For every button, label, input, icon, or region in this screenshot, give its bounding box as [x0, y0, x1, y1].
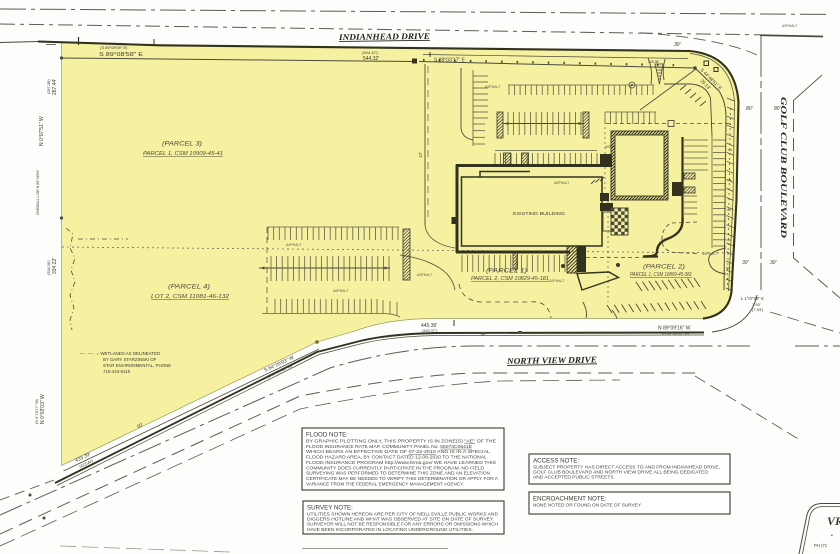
- svg-text:(PARCEL 4): (PARCEL 4): [168, 284, 210, 291]
- svg-text:NONE NOTED OR FOUND ON DATE OF: NONE NOTED OR FOUND ON DATE OF SURVEY: [533, 503, 641, 508]
- svg-text:(N 89°59'33" W): (N 89°59'33" W): [662, 332, 690, 336]
- svg-text:30': 30': [770, 260, 778, 266]
- svg-text:VARIANCE FROM THE FEDERAL EMER: VARIANCE FROM THE FEDERAL EMERGENCY MANA…: [306, 481, 464, 486]
- svg-text:30': 30': [674, 42, 682, 48]
- svg-text:FLOOD INSURANCE RATE MAP, COMM: FLOOD INSURANCE RATE MAP, COMMUNITY PANE…: [306, 444, 472, 449]
- svg-text:VR: VR: [827, 514, 840, 528]
- svg-text:287.44': 287.44': [52, 79, 58, 95]
- svg-text:ASPHALT: ASPHALT: [333, 289, 348, 293]
- svg-text:— · — · = WETLANDS AS DELINEAT: — · — · = WETLANDS AS DELINEATED: [80, 351, 160, 356]
- svg-text:(PARCEL 2): (PARCEL 2): [643, 264, 685, 271]
- svg-text:12': 12': [418, 152, 423, 158]
- svg-text:INDIANHEAD DRIVE: INDIANHEAD DRIVE: [338, 31, 430, 42]
- svg-text:PARCEL 1, CSM 10909-45-41: PARCEL 1, CSM 10909-45-41: [143, 151, 223, 157]
- svg-text:FLOOD HAZARD AREA, BY CONTACT: FLOOD HAZARD AREA, BY CONTACT DATED 12-0…: [306, 455, 488, 460]
- svg-text:S 89°03'17" E: S 89°03'17" E: [434, 58, 466, 64]
- svg-text:544.32': 544.32': [363, 56, 379, 62]
- svg-text:ACCESS NOTE:: ACCESS NOTE:: [533, 458, 579, 465]
- svg-text:(PARCEL 3): (PARCEL 3): [162, 141, 202, 148]
- svg-text:PARCEL 1, CSM 10809-45-381: PARCEL 1, CSM 10809-45-381: [630, 272, 692, 278]
- svg-text:WHICH BEARS AN EFFECTIVE DATE: WHICH BEARS AN EFFECTIVE DATE OF 07-22-2…: [306, 449, 491, 454]
- svg-text:L 1°07'28" E: L 1°07'28" E: [741, 296, 764, 301]
- svg-text:SURVEYING WAS PERFORMED TO DET: SURVEYING WAS PERFORMED TO DETERMINE THI…: [306, 471, 490, 476]
- svg-text:CERTIFICATE MAY BE NEEDED TO V: CERTIFICATE MAY BE NEEDED TO VERIFY THIS…: [306, 476, 498, 481]
- svg-text:(PARCEL 1): (PARCEL 1): [486, 268, 527, 275]
- svg-text:PARCEL 2, CSM 10829-45-181: PARCEL 2, CSM 10829-45-181: [471, 276, 549, 282]
- svg-text:S 89°08'58" E: S 89°08'58" E: [99, 52, 143, 58]
- svg-text:LOT 2, CSM 11081-46-132: LOT 2, CSM 11081-46-132: [151, 294, 229, 300]
- svg-text:ASPHALT: ASPHALT: [549, 279, 564, 283]
- svg-text:(287.38'): (287.38'): [47, 78, 51, 94]
- svg-text:30': 30': [742, 260, 750, 266]
- svg-text:80': 80': [774, 106, 782, 112]
- svg-text:80': 80': [746, 106, 754, 112]
- svg-text:ASPHALT: ASPHALT: [782, 24, 797, 28]
- svg-text:334.22': 334.22': [52, 258, 58, 274]
- svg-text:FLOOD NOTE:: FLOOD NOTE:: [306, 432, 348, 439]
- svg-text:ENCROACHMENT NOTE:: ENCROACHMENT NOTE:: [533, 496, 607, 503]
- svg-text:•: •: [831, 533, 833, 539]
- svg-text:(445.37'): (445.37'): [422, 329, 438, 333]
- svg-text:715-443-6115: 715-443-6115: [103, 369, 131, 374]
- svg-text:GOLF CLUB BOULEVARD: GOLF CLUB BOULEVARD: [779, 97, 788, 238]
- svg-text:(544.32'): (544.32'): [362, 50, 378, 55]
- svg-text:STAR ENVIRONMENTAL, PHONE: STAR ENVIRONMENTAL, PHONE: [103, 363, 171, 368]
- svg-text:(7.93'): (7.93'): [752, 307, 764, 312]
- svg-text:N 0°07'51" W: N 0°07'51" W: [39, 116, 45, 146]
- svg-text:ASPHALT: ASPHALT: [286, 243, 301, 247]
- svg-text:SURVEY NOTE:: SURVEY NOTE:: [307, 505, 353, 512]
- svg-text:(334.38'): (334.38'): [47, 259, 51, 275]
- svg-text:NORTH VIEW DRIVE: NORTH VIEW DRIVE: [506, 354, 597, 366]
- svg-text:BY GRAPHIC PLOTTING ONLY, THIS: BY GRAPHIC PLOTTING ONLY, THIS PROPERTY …: [306, 439, 496, 444]
- svg-text:N 0°03'03" W: N 0°03'03" W: [40, 394, 46, 424]
- svg-text:OVERALL L OR N 89°46'04": OVERALL L OR N 89°46'04": [36, 169, 40, 215]
- svg-text:AND ACCEPTED PUBLIC STREETS.: AND ACCEPTED PUBLIC STREETS.: [533, 475, 615, 480]
- svg-text:ASPHALT: ASPHALT: [417, 273, 432, 277]
- svg-text:PH (71: PH (71: [814, 543, 828, 548]
- svg-text:BY GARY STARZINSKI OF: BY GARY STARZINSKI OF: [103, 357, 157, 362]
- svg-text:ASPHALT: ASPHALT: [554, 181, 569, 185]
- svg-text:FLOOD INSURANCE PROGRAM http:/: FLOOD INSURANCE PROGRAM http://www.fema.…: [306, 460, 496, 465]
- svg-text:(N 0°10'17" W): (N 0°10'17" W): [35, 398, 39, 424]
- svg-text:(S 89°08'58" E): (S 89°08'58" E): [100, 45, 128, 50]
- svg-text:EXISTING BUILDING: EXISTING BUILDING: [513, 211, 565, 217]
- svg-text:COMMUNITY DOES CURRENTLY PARTI: COMMUNITY DOES CURRENTLY PARTICIPATE IN …: [306, 465, 484, 470]
- svg-text:HAVE BEEN INCORPORATED IN LOCA: HAVE BEEN INCORPORATED IN LOCATING UNDER…: [307, 527, 473, 532]
